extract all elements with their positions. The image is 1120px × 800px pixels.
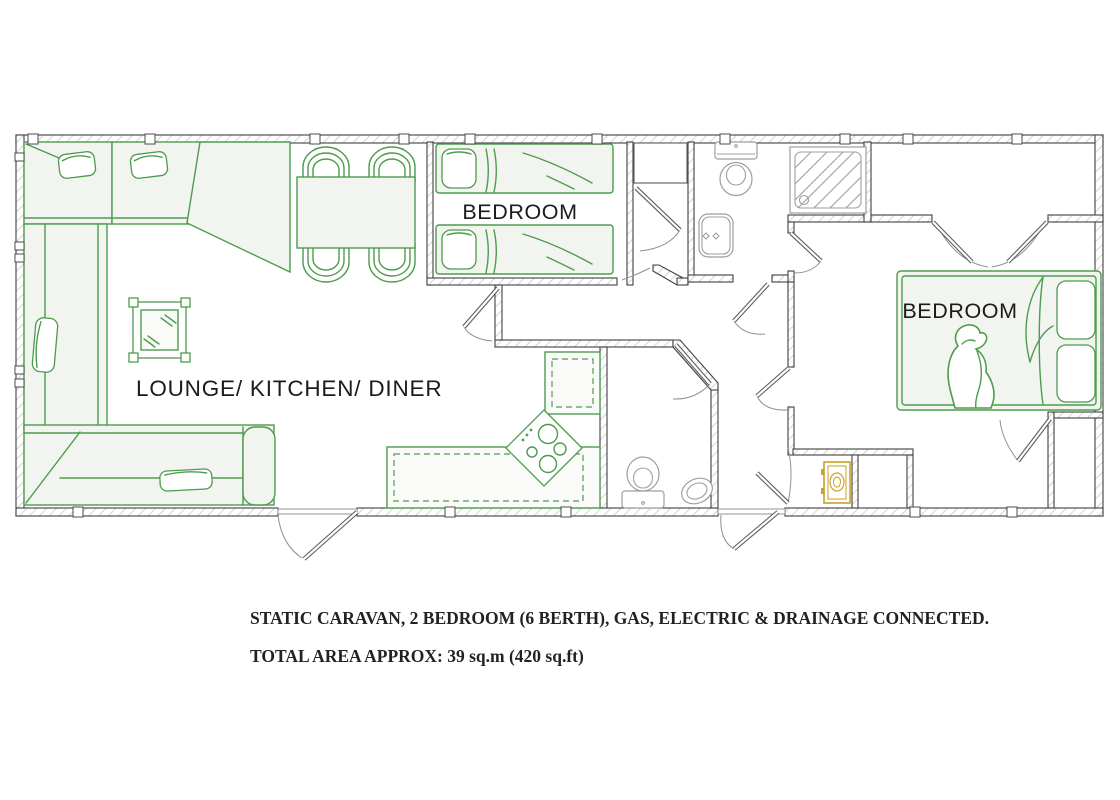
caption-area: TOTAL AREA APPROX: 39 sq.m (420 sq.ft) (250, 646, 584, 667)
dining-set (297, 147, 415, 282)
sofa-cushion (58, 151, 97, 179)
double-bed (897, 271, 1101, 410)
master-bedroom-label: BEDROOM (902, 299, 1017, 323)
twin-bed-1 (436, 144, 613, 193)
sofa-cushion (32, 317, 59, 373)
boiler (821, 462, 850, 503)
basin-icon (699, 214, 733, 257)
shower-tray (790, 147, 866, 213)
dining-table (297, 177, 415, 248)
floor-plan-svg: LOUNGE/ KITCHEN/ DINER BEDROOM BEDROOM (0, 0, 1120, 800)
caption-description: STATIC CARAVAN, 2 BEDROOM (6 BERTH), GAS… (250, 608, 989, 629)
sofa-cushion (130, 151, 169, 179)
mirror (129, 298, 190, 362)
twin-bedroom-label: BEDROOM (462, 200, 577, 224)
lounge-kitchen-diner-label: LOUNGE/ KITCHEN/ DINER (136, 376, 442, 401)
door-threshold-lounge (278, 509, 357, 514)
toilet-icon (715, 142, 757, 196)
twin-bed-2 (436, 225, 613, 274)
floor-plan-page: LOUNGE/ KITCHEN/ DINER BEDROOM BEDROOM S… (0, 0, 1120, 800)
wardrobe-small (634, 143, 687, 183)
toilet-2-icon (622, 457, 664, 508)
sofa-cushion (160, 469, 213, 492)
